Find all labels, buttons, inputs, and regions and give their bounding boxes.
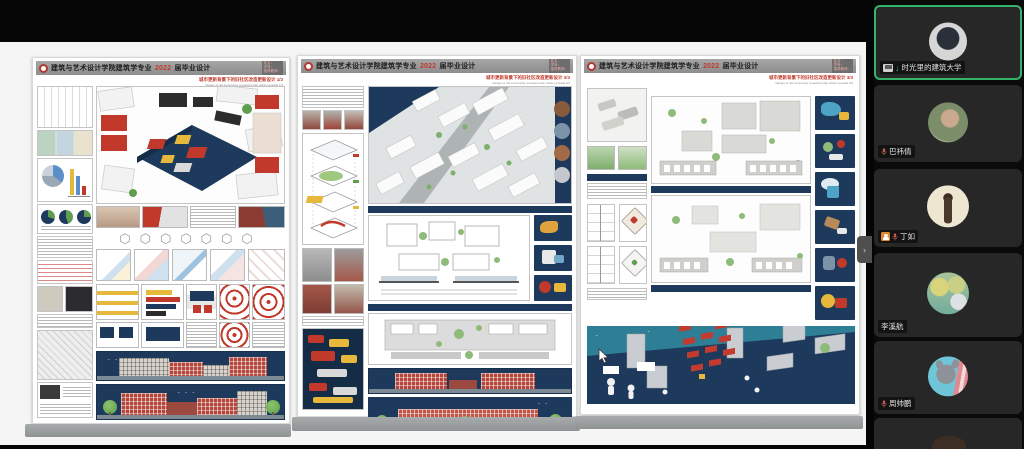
poster-2: 建筑与艺术设计学院建筑学专业 2022 届毕业设计 姓名： 学号： 指导教师： …: [297, 55, 577, 417]
avatar: [928, 102, 968, 142]
poster-2-pedestal: [292, 417, 580, 431]
poster-2-section-strip: [368, 206, 572, 213]
bar: [76, 176, 80, 195]
poster-1-axonometric: [96, 86, 285, 204]
svg-text:⌄: ⌄: [595, 332, 598, 337]
avatar: [928, 356, 968, 396]
svg-text:⌄: ⌄: [647, 328, 650, 333]
poster-1-pedestal: [25, 424, 291, 437]
poster-3-student-info: 姓名： 学号： 指导教师：: [832, 59, 854, 73]
poster-3-header: 建筑与艺术设计学院建筑学专业 2022 届毕业设计 姓名： 学号： 指导教师：: [584, 59, 856, 73]
participant-name: 周帅鹏: [889, 398, 912, 409]
participant-nameplate: 丁如: [878, 230, 918, 243]
participant-nameplate: ↓ 时光里的建筑大学: [880, 61, 965, 74]
poster-2-navy-diagram: [302, 328, 364, 410]
poster-1-massing-hexagons: ⬡⬡⬡⬡⬡⬡⬡: [96, 231, 285, 247]
participant-tile[interactable]: 丁如: [874, 169, 1022, 247]
participant-tile[interactable]: 巴祎倩: [874, 85, 1022, 162]
participant-tile[interactable]: 李溪航: [874, 253, 1022, 337]
poster-1: 建筑与艺术设计学院建筑学专业 2022 届毕业设计 姓名： 学号： 指导教师： …: [32, 57, 290, 424]
poster-1-student-info: 姓名： 学号： 指导教师：: [262, 61, 284, 75]
muted-mic-icon: [881, 400, 887, 408]
participant-nameplate: 李溪航: [878, 320, 907, 333]
university-seal-icon: [39, 64, 48, 73]
poster-1-header: 建筑与艺术设计学院建筑学专业 2022 届毕业设计 姓名： 学号： 指导教师：: [36, 61, 286, 75]
svg-text:⌄: ⌄: [837, 332, 840, 337]
pie-chart: [59, 210, 73, 224]
muted-mic-icon: [881, 148, 887, 156]
poster-3-section-strip: [651, 186, 811, 193]
participant-name: 李溪航: [881, 321, 904, 332]
cursor-arrow-icon: [598, 348, 610, 364]
participant-name: 丁如: [900, 231, 915, 242]
poster-2-subtitle: 城市更新背景下的旧社区改造更新设计 2/3 Design of old comm…: [486, 75, 570, 85]
poster-1-title: 建筑与艺术设计学院建筑学专业 2022 届毕业设计: [51, 63, 211, 73]
poster-3-subtitle: 城市更新背景下的旧社区改造更新设计 3/3 Design of old comm…: [769, 75, 853, 85]
muted-mic-icon: [892, 233, 898, 241]
poster-3-plan-b: [651, 195, 811, 283]
poster-2-aerial-render: [368, 86, 572, 204]
participant-nameplate: 周帅鹏: [878, 397, 915, 410]
avatar: [927, 272, 969, 314]
screen-share-icon: [883, 64, 893, 72]
poster-3-title: 建筑与艺术设计学院建筑学专业 2022 届毕业设计: [599, 61, 759, 71]
poster-3-market-axonometric: ⌄⌄⌄: [587, 326, 855, 404]
poster-3-section-strip: [651, 285, 811, 292]
bar: [70, 169, 74, 195]
avatar: [929, 22, 967, 60]
poster-3-pedestal: [575, 416, 863, 429]
university-seal-icon: [304, 62, 313, 71]
share-arrow-icon: ↓: [895, 64, 900, 72]
collapse-sidebar-handle[interactable]: ›: [857, 236, 872, 263]
meeting-window: 建筑与艺术设计学院建筑学专业 2022 届毕业设计 姓名： 学号： 指导教师： …: [0, 0, 1024, 449]
participant-nameplate: 巴祎倩: [878, 145, 915, 158]
participant-tile-presenter[interactable]: ↓ 时光里的建筑大学: [874, 5, 1022, 80]
poster-3: 建筑与艺术设计学院建筑学专业 2022 届毕业设计 姓名： 学号： 指导教师： …: [580, 55, 860, 415]
poster-2-student-info: 姓名： 学号： 指导教师：: [549, 59, 571, 73]
poster-2-floorplan: [368, 313, 572, 365]
participant-name: 巴祎倩: [889, 146, 912, 157]
participant-tile-partial[interactable]: [874, 418, 1022, 449]
pie-chart: [42, 165, 64, 187]
participant-name: 时光里的建筑大学: [902, 62, 962, 73]
bar: [82, 186, 86, 195]
poster-1-elevation-1: ⌄⌄⌄: [96, 351, 285, 381]
avatar: [927, 185, 969, 227]
poster-2-title: 建筑与艺术设计学院建筑学专业 2022 届毕业设计: [316, 61, 476, 71]
shared-screen: 建筑与艺术设计学院建筑学专业 2022 届毕业设计 姓名： 学号： 指导教师： …: [0, 42, 866, 445]
pie-chart: [77, 210, 91, 224]
poster-2-header: 建筑与艺术设计学院建筑学专业 2022 届毕业设计 姓名： 学号： 指导教师：: [301, 59, 573, 73]
pie-chart: [41, 210, 55, 224]
poster-1-elevation-2: ⌄⌄⌄: [96, 384, 285, 420]
avatar: [932, 436, 966, 449]
chevron-right-icon: ›: [863, 245, 866, 255]
poster-2-elevation-1: [368, 368, 572, 394]
poster-2-exploded-axon: [302, 133, 364, 245]
poster-3-plan-a: [651, 96, 811, 184]
hand-raised-icon: [881, 232, 890, 241]
poster-2-siteplan: [368, 215, 530, 301]
participant-tile[interactable]: 周帅鹏: [874, 341, 1022, 414]
participants-sidebar: ↓ 时光里的建筑大学 巴祎倩 丁如 李溪航: [874, 0, 1024, 449]
poster-2-section-strip: [368, 304, 572, 311]
university-seal-icon: [587, 62, 596, 71]
